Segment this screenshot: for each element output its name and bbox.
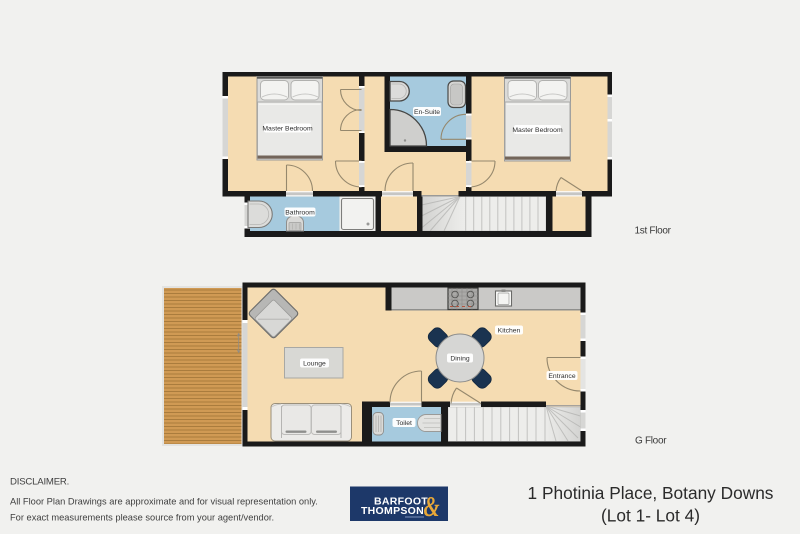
svg-text:DISCLAIMER.: DISCLAIMER. [10, 477, 69, 488]
svg-text:Master Bedroom: Master Bedroom [512, 127, 563, 134]
svg-text:Toilet: Toilet [396, 420, 412, 427]
svg-text:G Floor: G Floor [635, 435, 667, 446]
svg-text:Bathroom: Bathroom [285, 209, 315, 216]
svg-text:1st Floor: 1st Floor [635, 226, 672, 237]
svg-text:Dining: Dining [450, 355, 469, 362]
svg-text:All Floor Plan Drawings are ap: All Floor Plan Drawings are approximate … [10, 497, 318, 507]
svg-text:THOMPSON: THOMPSON [361, 505, 424, 517]
svg-text:En-Suite: En-Suite [414, 109, 440, 116]
svg-text:Entrance: Entrance [548, 373, 575, 380]
svg-text:1 Photinia Place, Botany Downs: 1 Photinia Place, Botany Downs [528, 483, 774, 503]
svg-text:Master Bedroom: Master Bedroom [262, 125, 313, 132]
svg-text:(Lot 1- Lot 4): (Lot 1- Lot 4) [601, 506, 700, 526]
svg-text:Kitchen: Kitchen [498, 327, 521, 334]
svg-text:&: & [424, 492, 440, 523]
svg-text:For exact measurements please: For exact measurements please source fro… [10, 513, 274, 523]
svg-text:Lounge: Lounge [303, 360, 326, 367]
